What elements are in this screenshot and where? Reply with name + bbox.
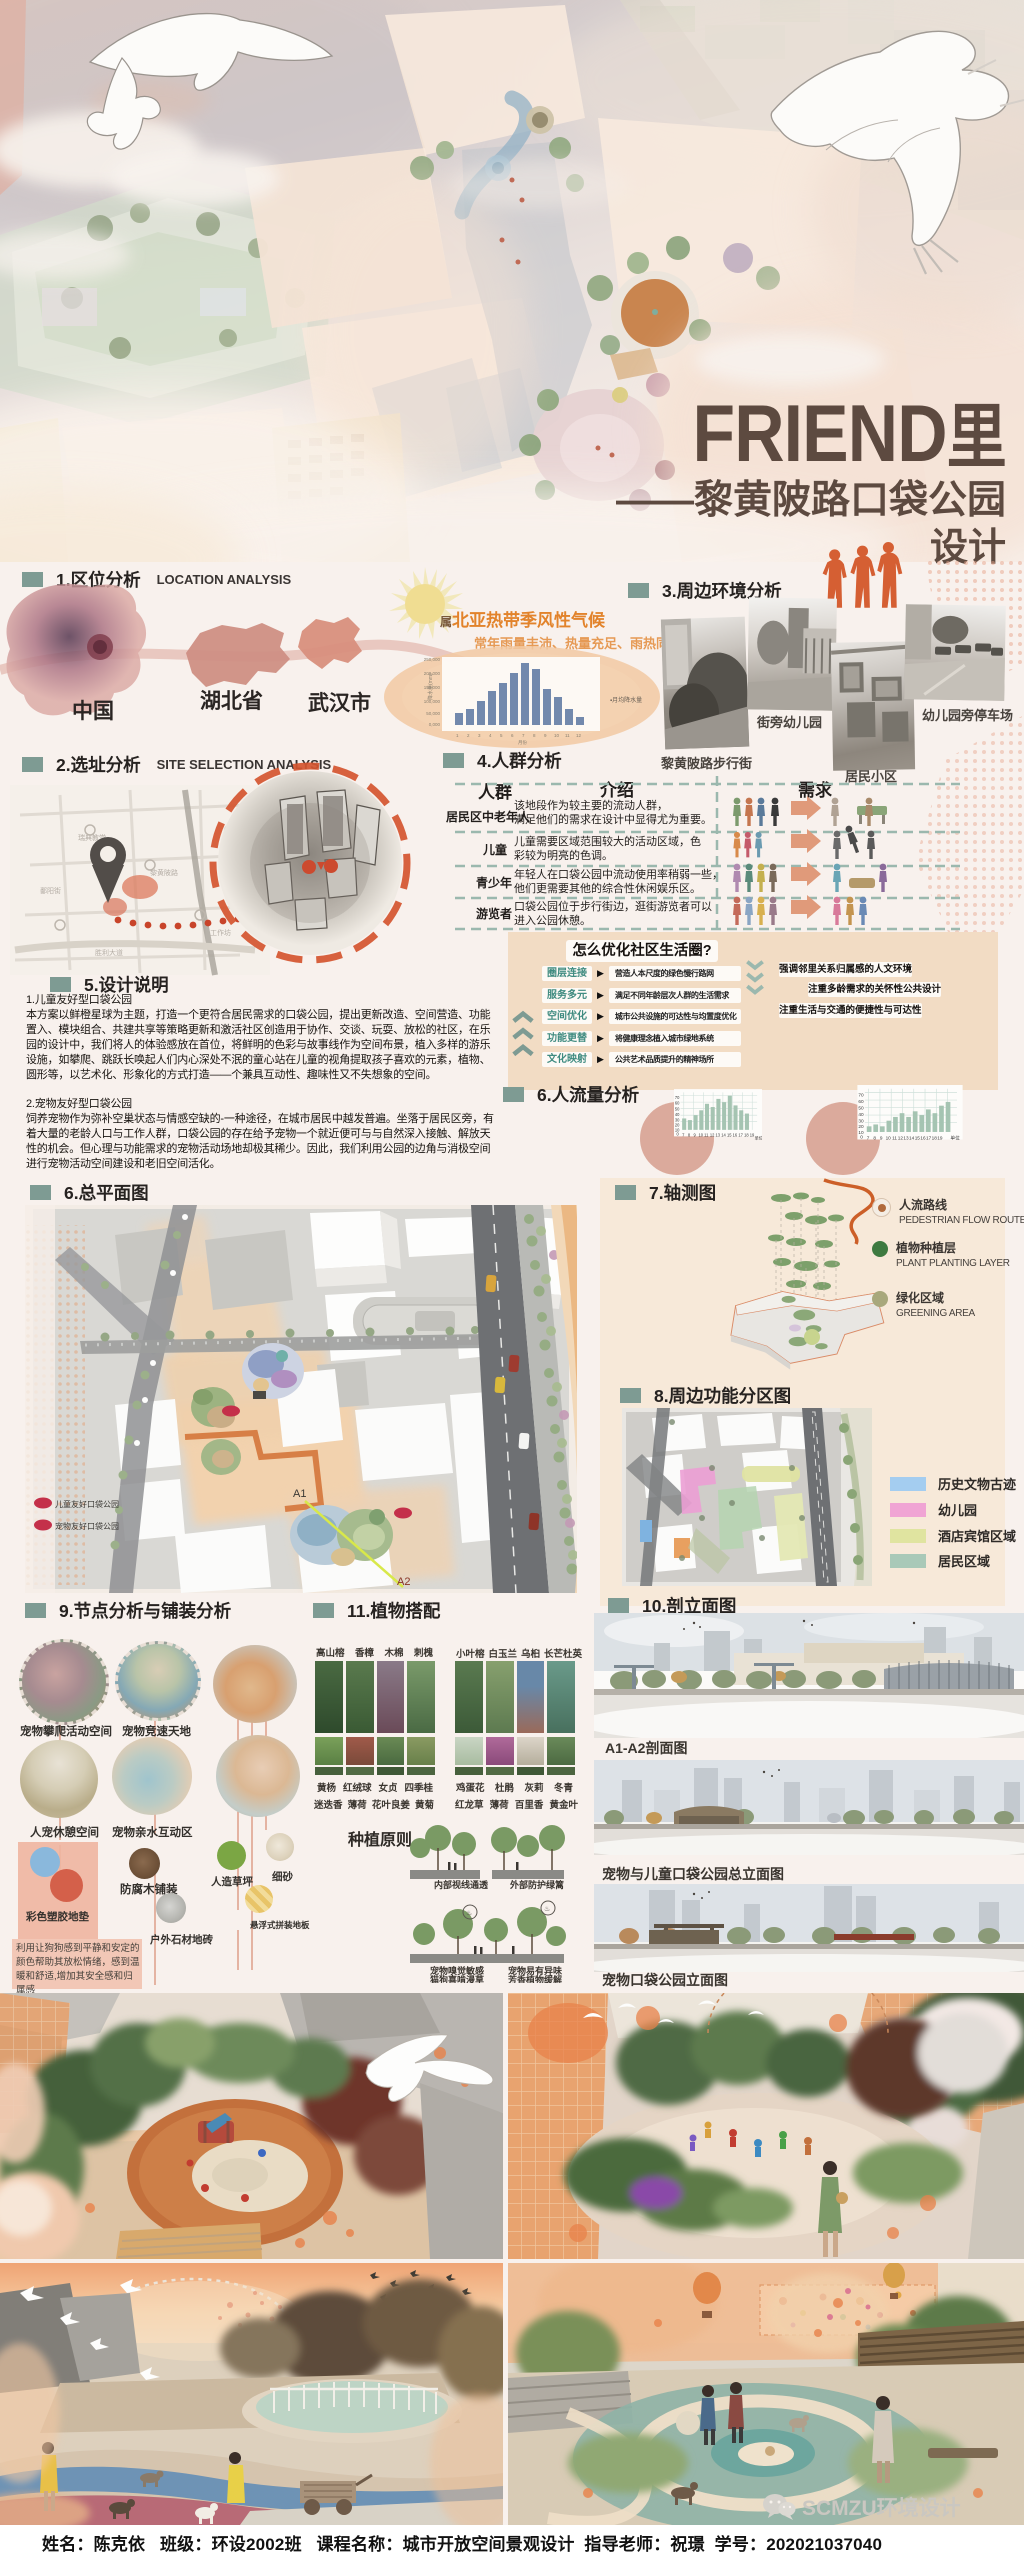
svg-text:14: 14	[721, 1132, 726, 1137]
svg-text:▪月均降水量: ▪月均降水量	[610, 696, 642, 704]
svg-text:降水量(mm): 降水量(mm)	[427, 673, 434, 700]
svg-text:9: 9	[880, 1135, 883, 1140]
svg-text:50: 50	[858, 1105, 864, 1110]
svg-text:鄱阳街: 鄱阳街	[40, 886, 61, 895]
svg-text:12: 12	[710, 1132, 715, 1137]
svg-text:10: 10	[554, 733, 560, 738]
svg-text:宠物友好口袋公园: 宠物友好口袋公园	[55, 1521, 119, 1531]
svg-text:17: 17	[738, 1132, 743, 1137]
svg-text:10: 10	[698, 1132, 703, 1137]
svg-text:中国: 中国	[72, 700, 114, 723]
svg-text:11: 11	[704, 1132, 709, 1137]
svg-text:19: 19	[937, 1135, 943, 1140]
svg-text:8: 8	[873, 1135, 876, 1140]
svg-text:30: 30	[858, 1119, 864, 1124]
svg-text:武汉市: 武汉市	[308, 691, 371, 715]
svg-text:40: 40	[858, 1112, 864, 1117]
svg-text:10: 10	[886, 1135, 892, 1140]
svg-text:A2: A2	[397, 1576, 410, 1588]
svg-text:60: 60	[675, 1101, 680, 1106]
svg-text:16: 16	[733, 1132, 738, 1137]
svg-text:0,000: 0,000	[429, 722, 441, 727]
svg-text:内部视线通透: 内部视线通透	[434, 1879, 489, 1890]
svg-text:♨: ♨	[544, 1905, 550, 1913]
svg-text:15: 15	[727, 1132, 732, 1137]
svg-text:50,000: 50,000	[426, 711, 440, 716]
svg-text:7: 7	[867, 1135, 870, 1140]
svg-text:12: 12	[576, 733, 582, 738]
svg-text:A1: A1	[293, 1488, 306, 1500]
svg-text:70: 70	[675, 1095, 680, 1100]
svg-text:外部防护绿篱: 外部防护绿篱	[509, 1879, 564, 1890]
svg-text:♨: ♨	[466, 1909, 472, 1917]
svg-text:儿童友好口袋公园: 儿童友好口袋公园	[55, 1499, 119, 1509]
svg-text:11: 11	[892, 1135, 897, 1140]
svg-text:0: 0	[860, 1135, 863, 1140]
svg-text:18: 18	[744, 1132, 749, 1137]
svg-text:猫狗喜啃漫草: 猫狗喜啃漫草	[430, 1974, 484, 1983]
svg-text:月份: 月份	[518, 739, 527, 746]
svg-text:70: 70	[858, 1092, 864, 1097]
svg-text:13: 13	[716, 1132, 721, 1137]
svg-text:单位/h: 单位/h	[755, 1135, 762, 1141]
svg-text:11: 11	[565, 733, 570, 738]
svg-text:芳香植物缓解: 芳香植物缓解	[508, 1974, 562, 1983]
svg-text:20: 20	[858, 1124, 864, 1129]
svg-text:黎黄陂路: 黎黄陂路	[150, 868, 178, 877]
svg-text:60: 60	[858, 1099, 864, 1104]
svg-text:50: 50	[675, 1106, 680, 1111]
svg-text:250,000: 250,000	[424, 657, 441, 662]
svg-text:40: 40	[675, 1112, 680, 1117]
svg-text:湖北省: 湖北省	[200, 690, 263, 713]
svg-text:胜利大道: 胜利大道	[95, 948, 123, 957]
svg-text:单位: 单位	[950, 1134, 960, 1141]
